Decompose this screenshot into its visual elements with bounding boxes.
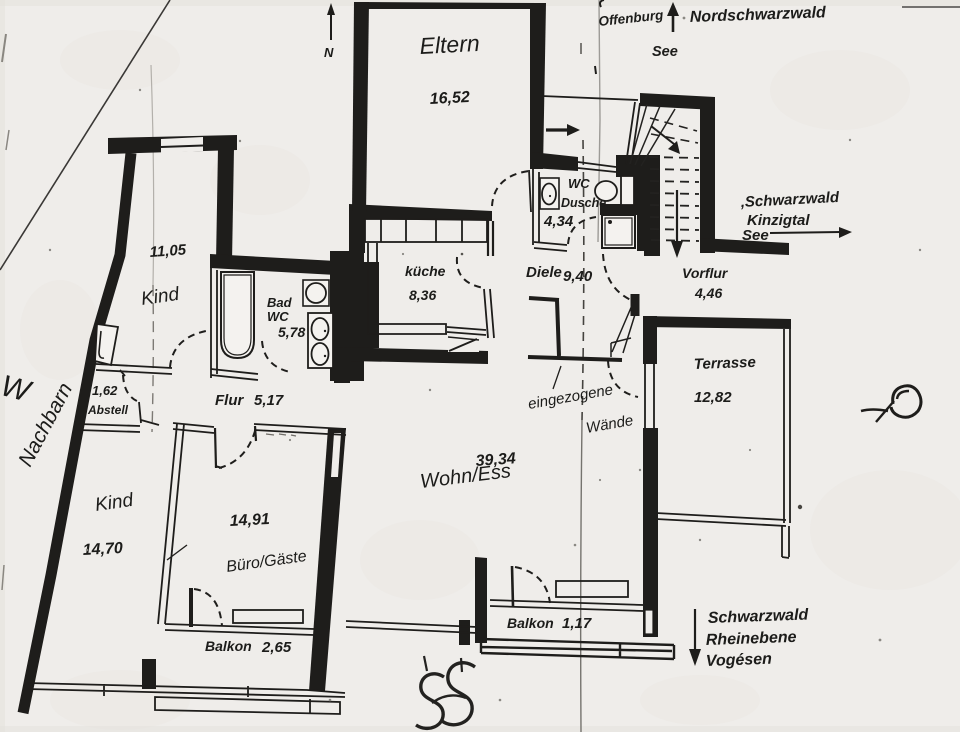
- svg-text:Balkon: Balkon: [507, 615, 554, 631]
- svg-text:1,17: 1,17: [562, 615, 592, 632]
- svg-text:Flur: Flur: [215, 392, 244, 409]
- svg-text:Terrasse: Terrasse: [694, 354, 757, 373]
- svg-text:11,05: 11,05: [149, 241, 187, 261]
- svg-text:Diele: Diele: [526, 264, 562, 281]
- svg-text:WC: WC: [267, 309, 289, 324]
- svg-text:8,36: 8,36: [409, 287, 436, 303]
- svg-text:Schwarzwald: Schwarzwald: [708, 606, 810, 627]
- svg-text:Abstell: Abstell: [87, 403, 129, 417]
- svg-text:See: See: [652, 44, 678, 60]
- svg-text:Bad: Bad: [267, 295, 293, 310]
- svg-text:Dusche: Dusche: [561, 196, 606, 210]
- svg-text:Vogésen: Vogésen: [706, 651, 773, 670]
- svg-text:12,82: 12,82: [694, 389, 732, 406]
- svg-text:5,17: 5,17: [254, 392, 284, 409]
- svg-text:4,46: 4,46: [694, 285, 722, 301]
- svg-text:Balkon: Balkon: [205, 638, 252, 654]
- svg-text:14,70: 14,70: [82, 540, 123, 559]
- svg-text:14,91: 14,91: [229, 511, 270, 530]
- svg-text:See: See: [742, 227, 769, 244]
- svg-text:Vorflur: Vorflur: [682, 265, 729, 281]
- svg-text:Rheinebene: Rheinebene: [706, 629, 797, 649]
- svg-text:9,40: 9,40: [563, 268, 593, 285]
- svg-text:N: N: [324, 45, 334, 60]
- svg-text:4,34: 4,34: [543, 213, 574, 230]
- svg-text:5,78: 5,78: [278, 324, 305, 340]
- svg-text:küche: küche: [405, 263, 446, 279]
- svg-text:2,65: 2,65: [261, 639, 292, 656]
- svg-text:Eltern: Eltern: [419, 30, 480, 59]
- svg-text:1,62: 1,62: [92, 383, 118, 398]
- svg-text:WC: WC: [568, 176, 590, 191]
- svg-text:16,52: 16,52: [429, 89, 470, 108]
